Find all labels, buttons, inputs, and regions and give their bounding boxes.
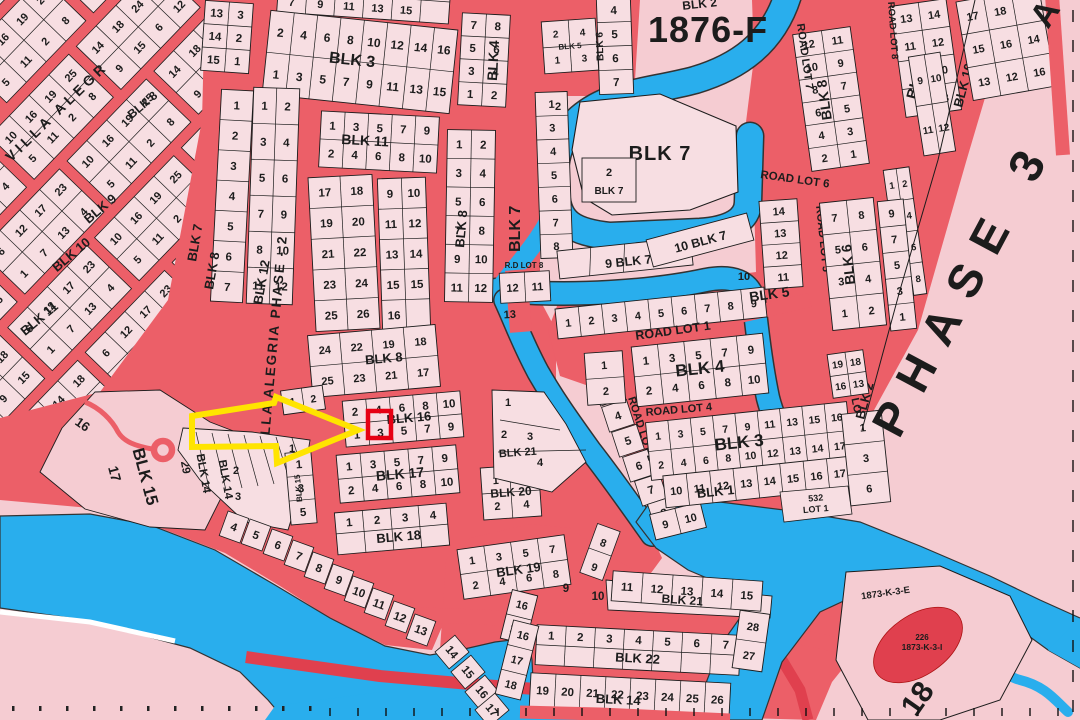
svg-text:8: 8 xyxy=(256,245,263,257)
svg-text:6: 6 xyxy=(552,194,559,206)
svg-text:1: 1 xyxy=(601,360,608,372)
svg-text:15: 15 xyxy=(410,279,424,291)
svg-text:BLK 11: BLK 11 xyxy=(341,131,389,149)
svg-text:10: 10 xyxy=(440,476,454,489)
svg-text:10: 10 xyxy=(747,374,761,387)
svg-text:2: 2 xyxy=(577,632,584,644)
svg-text:2: 2 xyxy=(348,485,355,498)
svg-text:3: 3 xyxy=(260,137,267,149)
svg-text:10: 10 xyxy=(592,591,605,603)
svg-text:13: 13 xyxy=(740,478,753,491)
svg-text:28: 28 xyxy=(746,621,760,635)
svg-text:10: 10 xyxy=(367,35,382,50)
svg-text:2: 2 xyxy=(235,33,242,45)
svg-text:22: 22 xyxy=(350,341,363,354)
svg-text:18: 18 xyxy=(350,185,364,198)
svg-text:21: 21 xyxy=(321,249,335,262)
svg-text:4: 4 xyxy=(283,137,290,149)
svg-text:11: 11 xyxy=(531,281,543,294)
svg-text:18: 18 xyxy=(414,336,427,349)
svg-text:2: 2 xyxy=(328,148,335,160)
svg-text:1: 1 xyxy=(505,397,511,409)
svg-text:14: 14 xyxy=(710,588,724,601)
svg-text:15: 15 xyxy=(387,280,401,292)
svg-text:1873-K-3-I: 1873-K-3-I xyxy=(902,642,943,652)
svg-text:16: 16 xyxy=(834,381,847,394)
svg-text:9: 9 xyxy=(888,208,895,221)
svg-text:2: 2 xyxy=(232,131,239,143)
svg-text:532: 532 xyxy=(808,492,824,503)
svg-text:15: 15 xyxy=(786,473,799,486)
svg-text:5: 5 xyxy=(657,308,664,321)
svg-text:15: 15 xyxy=(740,590,754,603)
svg-text:13: 13 xyxy=(503,309,516,322)
svg-text:8: 8 xyxy=(398,152,406,164)
svg-text:12: 12 xyxy=(1005,71,1019,85)
svg-text:2: 2 xyxy=(501,429,507,441)
svg-text:13: 13 xyxy=(210,8,224,21)
svg-text:6: 6 xyxy=(866,483,873,496)
svg-text:12: 12 xyxy=(474,283,487,295)
svg-text:15: 15 xyxy=(972,43,986,57)
svg-text:BLK 14: BLK 14 xyxy=(595,691,641,708)
svg-text:1: 1 xyxy=(467,89,475,101)
svg-text:11: 11 xyxy=(343,1,355,14)
svg-text:9: 9 xyxy=(441,453,448,466)
svg-text:20: 20 xyxy=(352,216,365,229)
svg-text:6: 6 xyxy=(225,251,232,263)
svg-text:5: 5 xyxy=(664,636,672,648)
svg-text:5: 5 xyxy=(611,29,618,41)
svg-text:7: 7 xyxy=(831,212,838,225)
svg-text:BLK 7: BLK 7 xyxy=(595,186,624,197)
svg-text:10: 10 xyxy=(738,271,750,283)
svg-text:6: 6 xyxy=(681,305,688,318)
svg-text:16: 16 xyxy=(437,42,452,57)
svg-text:17: 17 xyxy=(417,367,430,380)
svg-text:1: 1 xyxy=(565,317,572,330)
svg-text:13: 13 xyxy=(786,416,799,429)
svg-text:5: 5 xyxy=(259,173,266,185)
svg-text:3: 3 xyxy=(606,633,613,645)
svg-text:6: 6 xyxy=(612,53,619,65)
svg-text:10: 10 xyxy=(475,254,488,266)
svg-text:7: 7 xyxy=(704,303,711,316)
svg-text:2: 2 xyxy=(351,406,358,419)
svg-text:15: 15 xyxy=(808,414,821,427)
svg-text:25: 25 xyxy=(325,310,339,323)
svg-text:2: 2 xyxy=(480,140,487,152)
svg-text:3: 3 xyxy=(235,491,241,503)
svg-text:9: 9 xyxy=(747,344,755,357)
svg-text:6: 6 xyxy=(375,151,382,163)
svg-text:15: 15 xyxy=(400,5,413,18)
svg-text:1: 1 xyxy=(899,311,906,324)
svg-text:6: 6 xyxy=(395,481,402,494)
svg-text:14: 14 xyxy=(409,248,423,260)
svg-text:BLK 20: BLK 20 xyxy=(490,484,533,501)
svg-text:7: 7 xyxy=(722,640,729,652)
svg-text:4: 4 xyxy=(635,635,643,647)
svg-text:12: 12 xyxy=(931,36,945,50)
svg-text:11: 11 xyxy=(922,125,935,138)
svg-text:2: 2 xyxy=(555,101,561,113)
svg-text:17: 17 xyxy=(833,468,846,481)
svg-text:2: 2 xyxy=(603,386,610,398)
svg-text:BLK 6: BLK 6 xyxy=(594,31,606,61)
svg-text:12: 12 xyxy=(775,250,788,263)
svg-text:7: 7 xyxy=(257,209,264,221)
svg-text:5: 5 xyxy=(469,43,477,55)
svg-text:1: 1 xyxy=(329,120,337,132)
svg-text:25: 25 xyxy=(686,693,700,706)
svg-text:11: 11 xyxy=(451,282,464,294)
svg-text:11: 11 xyxy=(904,40,917,54)
svg-text:15: 15 xyxy=(207,54,221,67)
svg-text:9: 9 xyxy=(423,125,430,137)
svg-text:1: 1 xyxy=(841,308,848,321)
svg-text:3: 3 xyxy=(611,313,618,326)
svg-text:2: 2 xyxy=(588,315,595,328)
svg-text:10: 10 xyxy=(744,450,757,463)
svg-text:13: 13 xyxy=(371,3,384,16)
svg-text:5: 5 xyxy=(551,170,558,182)
svg-text:11: 11 xyxy=(386,79,400,94)
svg-text:2: 2 xyxy=(233,465,239,477)
svg-text:3: 3 xyxy=(401,512,408,525)
svg-text:2: 2 xyxy=(645,385,653,398)
svg-text:5: 5 xyxy=(227,221,235,233)
svg-text:23: 23 xyxy=(323,279,336,292)
svg-text:13: 13 xyxy=(852,378,865,391)
svg-text:BLK 7: BLK 7 xyxy=(629,143,692,165)
svg-text:25: 25 xyxy=(321,375,334,388)
svg-text:7: 7 xyxy=(613,77,620,89)
svg-text:15: 15 xyxy=(432,84,447,99)
svg-text:12: 12 xyxy=(766,447,779,460)
svg-text:1: 1 xyxy=(233,100,241,112)
svg-text:10: 10 xyxy=(419,153,432,166)
svg-text:BLK 22: BLK 22 xyxy=(615,650,661,667)
svg-text:10: 10 xyxy=(670,485,683,498)
svg-text:3: 3 xyxy=(237,9,244,21)
svg-text:9: 9 xyxy=(447,421,454,434)
svg-text:16: 16 xyxy=(388,310,401,322)
svg-text:2: 2 xyxy=(374,515,381,528)
svg-text:5: 5 xyxy=(893,260,900,273)
svg-text:18: 18 xyxy=(849,357,862,370)
svg-text:22: 22 xyxy=(353,247,366,260)
svg-text:1: 1 xyxy=(548,630,556,642)
svg-text:11: 11 xyxy=(831,34,844,48)
svg-text:BLK 5: BLK 5 xyxy=(558,41,582,52)
svg-text:18: 18 xyxy=(993,5,1007,19)
svg-text:21: 21 xyxy=(385,370,398,383)
svg-text:7: 7 xyxy=(400,124,407,136)
svg-text:13: 13 xyxy=(900,13,914,27)
svg-text:7: 7 xyxy=(288,0,295,9)
svg-text:3: 3 xyxy=(230,161,237,173)
svg-text:2: 2 xyxy=(494,501,501,513)
svg-text:4: 4 xyxy=(610,5,617,17)
svg-text:12: 12 xyxy=(506,282,519,295)
svg-text:8: 8 xyxy=(727,300,734,313)
svg-text:2: 2 xyxy=(868,305,875,318)
svg-text:3: 3 xyxy=(549,122,556,134)
svg-text:7: 7 xyxy=(891,234,898,247)
svg-text:7: 7 xyxy=(224,282,231,294)
svg-text:13: 13 xyxy=(977,76,991,90)
svg-text:11: 11 xyxy=(385,219,398,231)
svg-text:3: 3 xyxy=(862,453,869,466)
svg-text:9: 9 xyxy=(280,209,287,221)
svg-text:20: 20 xyxy=(561,687,574,700)
svg-text:13: 13 xyxy=(385,249,398,261)
svg-text:9: 9 xyxy=(317,0,324,11)
svg-text:9: 9 xyxy=(454,254,461,266)
svg-text:2: 2 xyxy=(606,167,612,179)
svg-text:24: 24 xyxy=(318,344,332,357)
svg-text:11: 11 xyxy=(764,418,776,431)
svg-text:BLK 7: BLK 7 xyxy=(507,206,524,252)
svg-text:19: 19 xyxy=(320,218,333,231)
svg-text:BLK 21: BLK 21 xyxy=(661,592,704,609)
svg-text:13: 13 xyxy=(789,445,802,458)
svg-text:5: 5 xyxy=(455,197,462,209)
svg-text:1: 1 xyxy=(456,139,463,151)
svg-text:6: 6 xyxy=(861,241,868,254)
svg-text:9: 9 xyxy=(563,583,569,595)
svg-text:26: 26 xyxy=(711,694,724,707)
svg-text:8: 8 xyxy=(858,210,865,223)
svg-text:12: 12 xyxy=(408,218,421,230)
svg-text:14: 14 xyxy=(208,31,222,44)
svg-text:BLK 4: BLK 4 xyxy=(484,40,502,81)
svg-text:17: 17 xyxy=(318,187,331,200)
svg-text:24: 24 xyxy=(661,692,675,705)
svg-text:13: 13 xyxy=(774,228,787,241)
svg-text:16: 16 xyxy=(1032,66,1046,80)
svg-text:10: 10 xyxy=(930,73,943,86)
svg-text:1: 1 xyxy=(548,99,555,111)
svg-text:12: 12 xyxy=(390,37,405,52)
svg-text:23: 23 xyxy=(353,372,366,385)
svg-text:R.D LOT 8: R.D LOT 8 xyxy=(505,261,544,270)
svg-text:26: 26 xyxy=(357,308,370,321)
svg-text:6: 6 xyxy=(479,197,486,209)
svg-text:4: 4 xyxy=(479,168,486,180)
svg-text:7: 7 xyxy=(470,20,477,32)
svg-text:27: 27 xyxy=(742,650,756,664)
svg-text:8: 8 xyxy=(494,21,502,33)
svg-text:3: 3 xyxy=(527,431,533,443)
svg-text:1: 1 xyxy=(261,101,268,113)
svg-text:13: 13 xyxy=(409,82,424,97)
svg-text:4: 4 xyxy=(351,150,359,162)
svg-text:11: 11 xyxy=(621,582,635,595)
svg-text:4: 4 xyxy=(537,457,544,469)
svg-text:14: 14 xyxy=(811,443,824,456)
svg-text:14: 14 xyxy=(763,475,777,488)
svg-text:1876-F: 1876-F xyxy=(648,9,768,50)
svg-text:2: 2 xyxy=(284,101,291,113)
svg-text:6: 6 xyxy=(282,173,289,185)
svg-text:16: 16 xyxy=(810,470,823,483)
svg-text:2: 2 xyxy=(491,90,498,102)
svg-text:9: 9 xyxy=(387,189,394,201)
svg-text:226: 226 xyxy=(915,633,929,642)
svg-text:16: 16 xyxy=(999,38,1013,52)
svg-text:7: 7 xyxy=(552,217,559,229)
svg-text:8: 8 xyxy=(478,226,485,238)
svg-text:7: 7 xyxy=(424,423,431,436)
svg-text:3: 3 xyxy=(468,66,475,78)
svg-text:6: 6 xyxy=(698,380,706,393)
svg-text:10: 10 xyxy=(442,398,456,411)
svg-text:4: 4 xyxy=(228,191,236,203)
svg-text:19: 19 xyxy=(831,359,844,372)
svg-text:10: 10 xyxy=(407,188,420,200)
svg-text:6: 6 xyxy=(693,638,700,650)
svg-text:17: 17 xyxy=(966,10,980,24)
svg-text:3: 3 xyxy=(455,168,462,180)
svg-text:14: 14 xyxy=(413,40,428,55)
svg-text:14: 14 xyxy=(772,206,786,219)
svg-text:24: 24 xyxy=(355,278,369,291)
svg-text:19: 19 xyxy=(536,685,549,698)
